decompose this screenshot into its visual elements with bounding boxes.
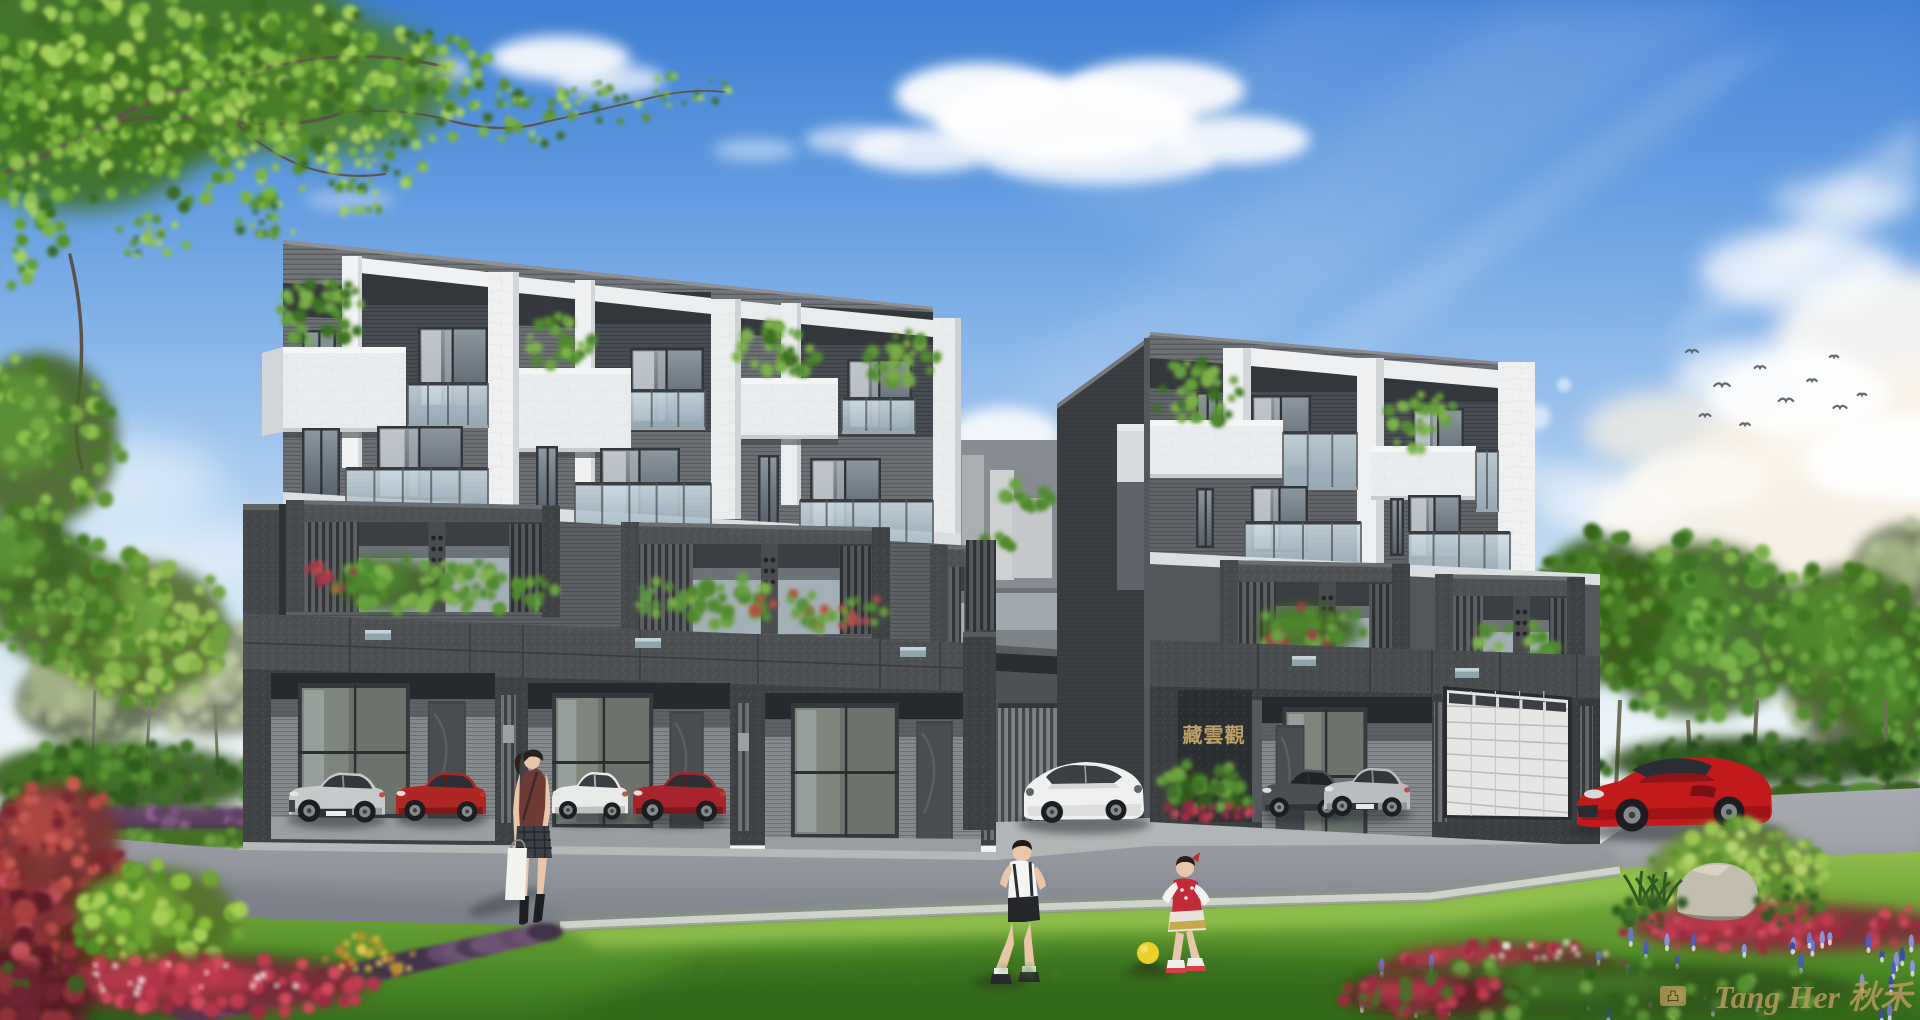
svg-text:藏雲觀: 藏雲觀 <box>1183 723 1246 747</box>
svg-text:凸: 凸 <box>1666 989 1679 1004</box>
svg-text:Tang Her 秋禾: Tang Her 秋禾 <box>1714 979 1915 1015</box>
